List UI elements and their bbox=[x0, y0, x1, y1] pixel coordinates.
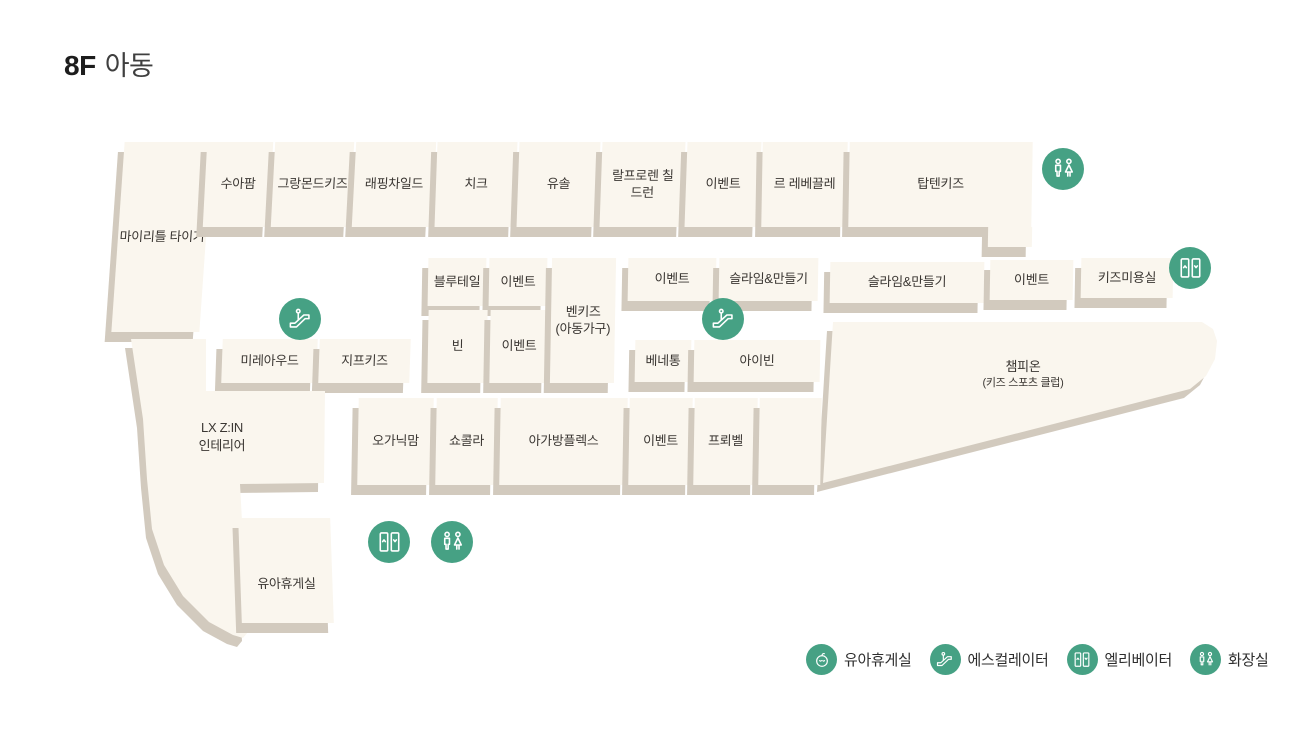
block-nursery-room: 유아휴게실 bbox=[238, 518, 334, 623]
store-label: 인테리어 bbox=[167, 437, 277, 455]
legend-label: 유아휴게실 bbox=[844, 649, 912, 670]
block-bluetail: 블루테일 bbox=[428, 258, 487, 306]
block-jeep-kids: 지프키즈 bbox=[318, 339, 411, 383]
legend-item-elevator: 엘리베이터 bbox=[1067, 644, 1173, 675]
elevator-icon bbox=[1169, 247, 1211, 289]
store-label: 수아팜 bbox=[220, 176, 256, 193]
store-label: 오가닉맘 bbox=[372, 433, 419, 450]
store-label: 이벤트 bbox=[501, 338, 536, 355]
block-event: 이벤트 bbox=[685, 142, 762, 227]
store-label: 래핑차일드 bbox=[364, 176, 423, 193]
block-benetton: 베네통 bbox=[635, 340, 692, 382]
block-my-little-tiger: 마이리틀 타이거 bbox=[111, 142, 212, 332]
block-le-rebekkeulle: 르 레베끌레 bbox=[761, 142, 847, 227]
store-label: 이벤트 bbox=[654, 271, 689, 288]
store-label: 이벤트 bbox=[1014, 272, 1049, 289]
store-label: 아이빈 bbox=[739, 353, 774, 370]
block-kids-salon: 키즈미용실 bbox=[1081, 258, 1174, 298]
block-event: 이벤트 bbox=[628, 258, 717, 301]
legend-item-escalator: 에스컬레이터 bbox=[930, 644, 1049, 675]
block-bin: 빈 bbox=[427, 310, 487, 383]
store-sublabel: (키즈 스포츠 클럽) bbox=[938, 376, 1108, 391]
block-event: 이벤트 bbox=[489, 258, 548, 306]
block-ralph-lauren-children: 랄프로렌 칠드런 bbox=[600, 142, 686, 227]
legend: 유아휴게실 에스컬레이터 엘리베이터 화장실 bbox=[806, 644, 1269, 675]
store-label: 이벤트 bbox=[705, 176, 741, 193]
store-label: 키즈미용실 bbox=[1098, 270, 1157, 287]
champion-shape: 챔피온 (키즈 스포츠 클럽) bbox=[823, 322, 1217, 487]
legend-label: 엘리베이터 bbox=[1105, 649, 1173, 670]
store-label: 탑텐키즈 bbox=[917, 176, 964, 193]
elevator-icon bbox=[1067, 644, 1098, 675]
legend-label: 에스컬레이터 bbox=[968, 649, 1049, 670]
block-agabang-flex: 아가방플렉스 bbox=[499, 398, 628, 485]
store-label: 베네통 bbox=[645, 353, 680, 370]
store-label: 슬라임&만들기 bbox=[729, 271, 808, 288]
block-grandmonde-kids: 그랑몬드키즈 bbox=[271, 142, 354, 227]
block-chocola: 쇼콜라 bbox=[435, 398, 498, 485]
legend-label: 화장실 bbox=[1228, 649, 1269, 670]
store-label: LX Z:IN bbox=[167, 419, 277, 437]
store-label: 이벤트 bbox=[500, 274, 535, 291]
store-label: 치크 bbox=[464, 176, 488, 193]
store-sublabel: (아동가구) bbox=[555, 321, 610, 338]
store-label: 그랑몬드키즈 bbox=[277, 176, 348, 193]
legend-item-restroom: 화장실 bbox=[1190, 644, 1269, 675]
store-label: 챔피온 bbox=[938, 358, 1108, 376]
store-label: 아가방플렉스 bbox=[528, 433, 598, 450]
block-yusol: 유솔 bbox=[517, 142, 601, 227]
store-label: 프뢰벨 bbox=[708, 433, 743, 450]
store-label: 마이리틀 타이거 bbox=[119, 229, 205, 246]
block-lapping-child: 래핑차일드 bbox=[352, 142, 436, 227]
elevator-icon bbox=[368, 521, 410, 563]
block-slime-making: 슬라임&만들기 bbox=[830, 262, 985, 303]
store-label: 빈 bbox=[452, 338, 464, 355]
restroom-icon bbox=[431, 521, 473, 563]
store-label: 이벤트 bbox=[643, 433, 678, 450]
restroom-icon bbox=[1042, 148, 1084, 190]
store-label: 슬라임&만들기 bbox=[868, 274, 947, 291]
store-label: 벤키즈 bbox=[566, 304, 601, 321]
escalator-icon bbox=[279, 298, 321, 340]
store-label: 르 레베끌레 bbox=[774, 176, 836, 193]
store-label: 유솔 bbox=[547, 176, 571, 193]
floor-map: 마이리틀 타이거 수아팜 그랑몬드키즈 래핑차일드 치크 유솔 랄프로렌 칠드런… bbox=[0, 0, 1300, 730]
block-froebel: 프뢰벨 bbox=[693, 398, 758, 485]
block-event: 이벤트 bbox=[628, 398, 693, 485]
block-suafarm: 수아팜 bbox=[203, 142, 273, 227]
store-label: 쇼콜라 bbox=[449, 433, 484, 450]
store-label: 유아휴게실 bbox=[257, 576, 316, 593]
block-event: 이벤트 bbox=[489, 310, 548, 383]
block-organic-mom: 오가닉맘 bbox=[357, 398, 434, 485]
block-slime-making: 슬라임&만들기 bbox=[719, 258, 819, 301]
block-unlabeled bbox=[758, 398, 822, 485]
block-champion: 챔피온 (키즈 스포츠 클럽) bbox=[823, 322, 1217, 487]
escalator-icon bbox=[930, 644, 961, 675]
store-label: 지프키즈 bbox=[341, 353, 388, 370]
block-event: 이벤트 bbox=[990, 260, 1074, 300]
block-ivin: 아이빈 bbox=[694, 340, 821, 382]
store-label: 블루테일 bbox=[434, 274, 481, 291]
block-extension bbox=[988, 227, 1032, 247]
restroom-icon bbox=[1190, 644, 1221, 675]
nursing-room-icon bbox=[806, 644, 837, 675]
block-topten-kids: 탑텐키즈 bbox=[848, 142, 1032, 227]
legend-item-nursing-room: 유아휴게실 bbox=[806, 644, 912, 675]
store-label: 랄프로렌 칠드런 bbox=[607, 168, 678, 202]
escalator-icon bbox=[702, 298, 744, 340]
block-benkids: 벤키즈 (아동가구) bbox=[550, 258, 616, 383]
block-chic: 치크 bbox=[435, 142, 518, 227]
